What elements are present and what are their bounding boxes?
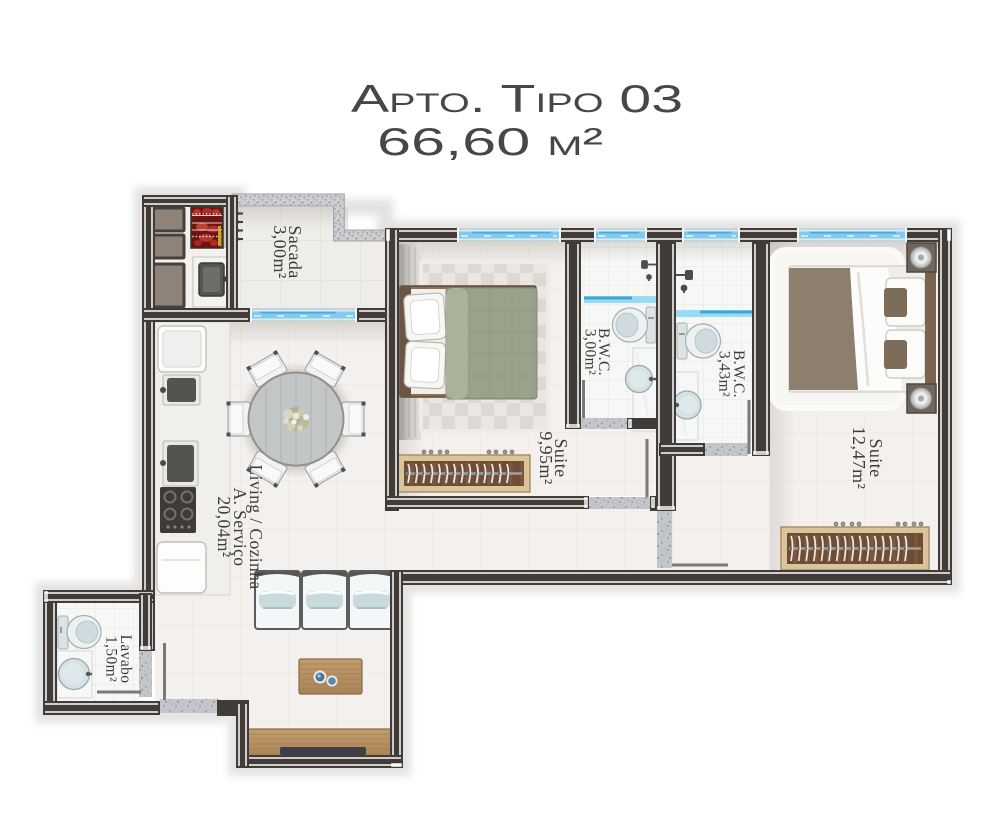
svg-text:Lavabo1,50m²: Lavabo1,50m² (103, 635, 135, 684)
svg-text:B.W.C.3,43m²: B.W.C.3,43m² (716, 350, 748, 398)
svg-text:Sacada3,00m²: Sacada3,00m² (270, 225, 305, 278)
svg-text:66,60 m²: 66,60 m² (377, 121, 603, 164)
svg-text:Suite9,95m²: Suite9,95m² (536, 431, 571, 484)
svg-text:B.W.C.3,00m²: B.W.C.3,00m² (582, 328, 613, 376)
svg-text:Apto. Tipo 03: Apto. Tipo 03 (351, 78, 683, 121)
